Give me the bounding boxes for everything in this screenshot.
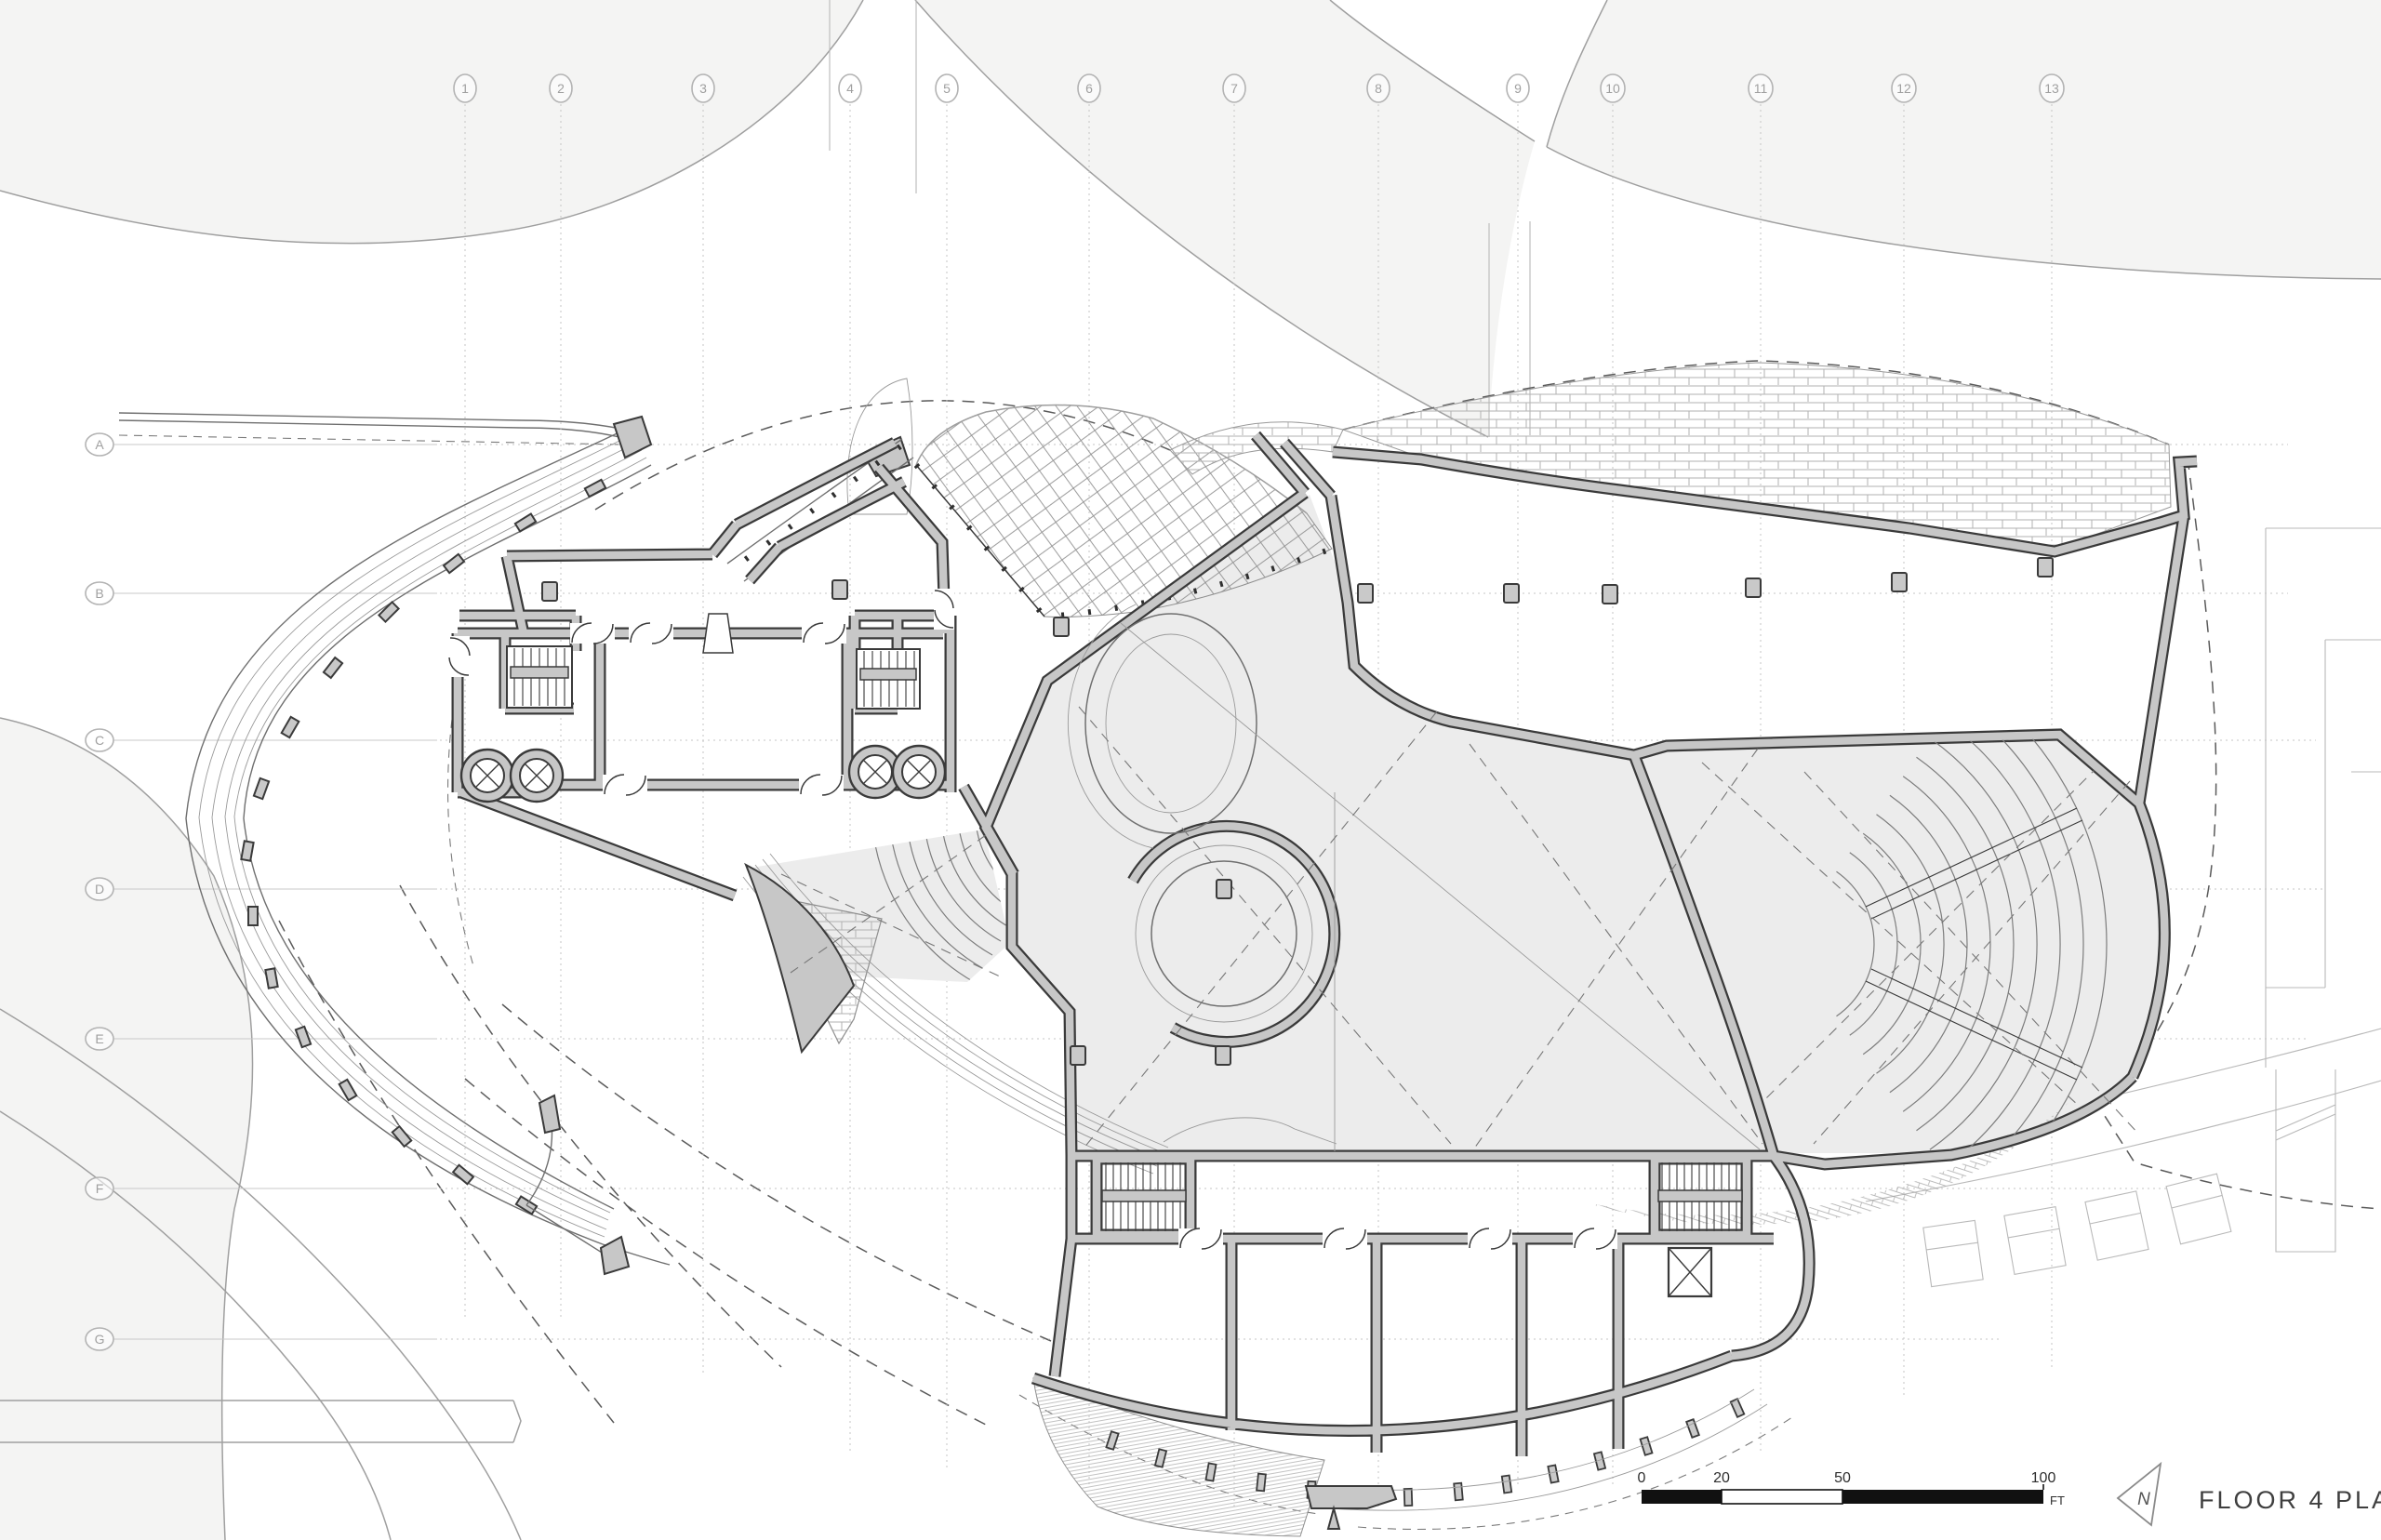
grid-bubble-col-8: 8 (1367, 74, 1390, 102)
grid-label: 9 (1514, 81, 1522, 96)
grid-label: 8 (1375, 81, 1382, 96)
grid-bubble-row-a: A (86, 433, 113, 456)
scale-tick-20: 20 (1713, 1470, 1730, 1486)
stair-south-left (1102, 1162, 1186, 1231)
grid-label: C (95, 733, 104, 748)
grid-bubble-col-10: 10 (1601, 74, 1625, 102)
grid-label: 11 (1754, 81, 1768, 96)
grid-bubble-col-13: 13 (2040, 74, 2064, 102)
grid-bubble-col-4: 4 (839, 74, 861, 102)
scale-tick-0: 0 (1638, 1470, 1646, 1486)
grid-label: 10 (1605, 81, 1620, 96)
floor-plan-sheet: { "drawing": { "title": "FLOOR 4 PLAN", … (0, 0, 2381, 1540)
walkway-wedge (1306, 1486, 1396, 1529)
grid-label: D (95, 882, 104, 896)
context-window-row (1923, 1174, 2231, 1286)
grid-label: 3 (699, 81, 707, 96)
scale-tick-50: 50 (1834, 1470, 1851, 1486)
floor-plan-canvas: 1 2 3 4 5 6 7 8 9 10 11 12 13 A B C D E … (0, 0, 2381, 1540)
terrace-hatch (1033, 1378, 1324, 1536)
scale-unit: FT (2050, 1494, 2065, 1507)
north-label: N (2137, 1490, 2150, 1509)
grid-label: 7 (1230, 81, 1238, 96)
grid-label: E (95, 1031, 103, 1046)
colonnade-end-bracket (601, 1237, 629, 1274)
grid-bubble-col-12: 12 (1892, 74, 1916, 102)
grid-bubble-col-11: 11 (1749, 74, 1773, 102)
grid-bubble-row-d: D (86, 878, 113, 900)
grid-label: 5 (943, 81, 951, 96)
grid-label: A (95, 437, 104, 452)
grid-label: 12 (1896, 81, 1911, 96)
grid-bubble-col-2: 2 (550, 74, 572, 102)
roof-brick-band (1170, 363, 2171, 550)
grid-bubble-col-7: 7 (1223, 74, 1245, 102)
sheet-title: FLOOR 4 PLAN (2199, 1486, 2381, 1514)
grid-bubble-col-9: 9 (1507, 74, 1529, 102)
north-arrow: N (2118, 1464, 2161, 1525)
grid-bubble-row-e: E (86, 1028, 113, 1050)
grid-bubble-row-g: G (86, 1328, 113, 1350)
colonnade-end-bracket (539, 1095, 560, 1133)
scale-tick-100: 100 (2031, 1470, 2056, 1486)
grid-bubble-col-6: 6 (1078, 74, 1100, 102)
grid-bubble-col-1: 1 (454, 74, 476, 102)
grid-bubble-col-3: 3 (692, 74, 714, 102)
grid-bubble-row-b: B (86, 582, 113, 604)
stair-northwest (507, 646, 572, 708)
grid-label: G (95, 1332, 105, 1347)
grid-label: B (95, 586, 103, 601)
grid-bubble-row-f: F (86, 1177, 113, 1200)
grid-label: 13 (2044, 81, 2059, 96)
grid-label: 4 (846, 81, 854, 96)
grid-label: 1 (461, 81, 469, 96)
stair-northeast (857, 649, 920, 709)
grid-label: 2 (557, 81, 565, 96)
grid-bubble-row-c: C (86, 729, 113, 751)
grid-bubble-col-5: 5 (936, 74, 958, 102)
grid-label: 6 (1085, 81, 1093, 96)
scale-bar: 0 20 50 100 FT (1638, 1470, 2065, 1507)
elevator-service (1669, 1248, 1711, 1296)
grid-label: F (96, 1181, 104, 1196)
